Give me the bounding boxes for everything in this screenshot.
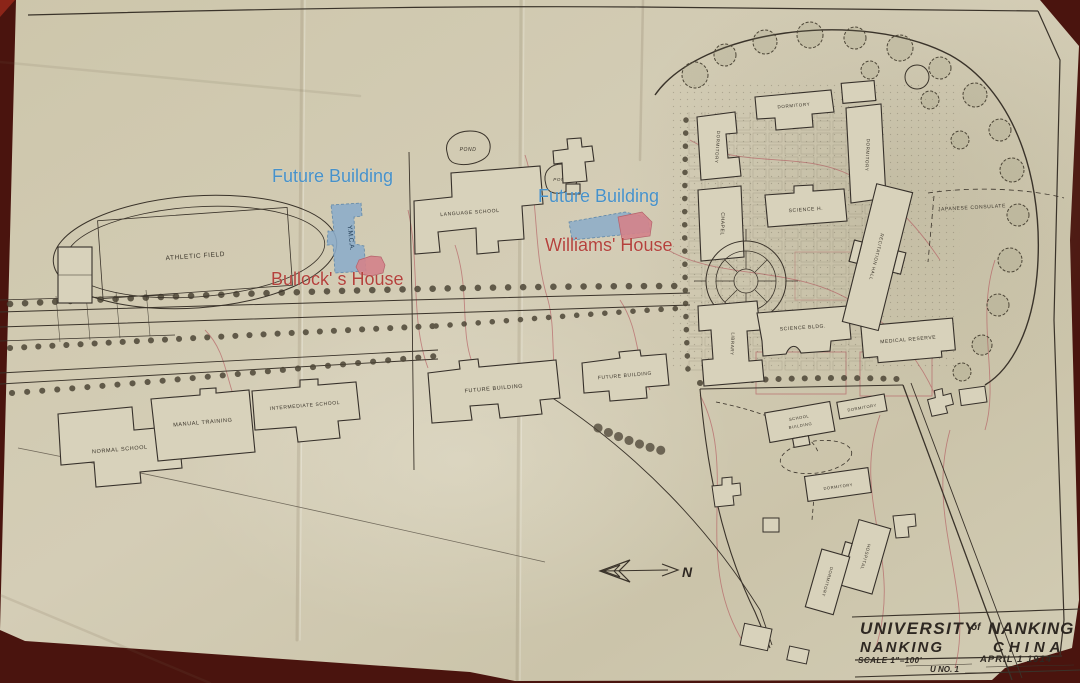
pond-west-label: POND: [460, 147, 477, 153]
title-university: UNIVERSITY: [860, 619, 977, 638]
annotation-williams-house: Williams' House: [545, 235, 672, 256]
title-nanking: NANKING: [988, 619, 1074, 638]
annotation-bullocks-house: Bullock' s House: [271, 269, 404, 290]
title-date: APRIL 1 1914: [979, 654, 1052, 665]
chapel-label: CHAPEL: [719, 212, 726, 236]
annotation-future-building-2: Future Building: [538, 186, 659, 207]
title-city: NANKING: [860, 639, 944, 656]
title-scale: SCALE 1"=100': [858, 656, 923, 665]
title-of: of: [971, 622, 982, 633]
north-label: N: [682, 564, 693, 580]
west-small-building: [58, 247, 92, 303]
map-drawing: ATHLETIC FIELD NORMAL SCHOOL MANUAL TRAI…: [0, 0, 1080, 683]
scanned-map-photo: ATHLETIC FIELD NORMAL SCHOOL MANUAL TRAI…: [0, 0, 1080, 683]
title-sheet: U NO. 1: [930, 665, 959, 674]
annotation-future-building-1: Future Building: [272, 166, 393, 187]
